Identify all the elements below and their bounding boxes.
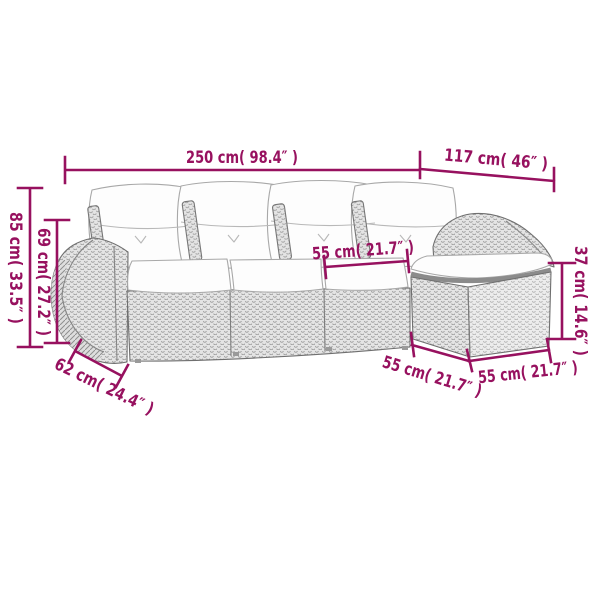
footstool-left-face [411,277,470,357]
dim-label-footstool-height: 37 cm( 14.6″ ) [570,246,590,356]
sofa-base [127,288,410,363]
dim-label-armrest-depth: 62 cm( 24.4″ ) [51,354,157,419]
seat-cushion [128,259,231,293]
sofa-illustration [51,181,554,364]
product-dimension-diagram: 250 cm( 98.4″ ) 117 cm( 46″ ) 85 cm( 33.… [0,0,600,600]
dim-label-back-height: 69 cm( 27.2″ ) [33,228,53,336]
seat-cushion [230,259,323,292]
dim-label-total-width: 250 cm( 98.4″ ) [186,148,298,168]
dim-label-chaise-depth: 117 cm( 46″ ) [443,146,548,175]
footstool-right-face [468,272,551,357]
dim-label-footstool-width: 55 cm( 21.7″ ) [477,358,579,388]
sofa-dimension-illustration: 250 cm( 98.4″ ) 117 cm( 46″ ) 85 cm( 33.… [0,0,600,600]
footstool [411,253,552,357]
left-armrest [51,238,128,363]
dim-label-total-height: 85 cm( 33.5″ ) [5,212,25,324]
